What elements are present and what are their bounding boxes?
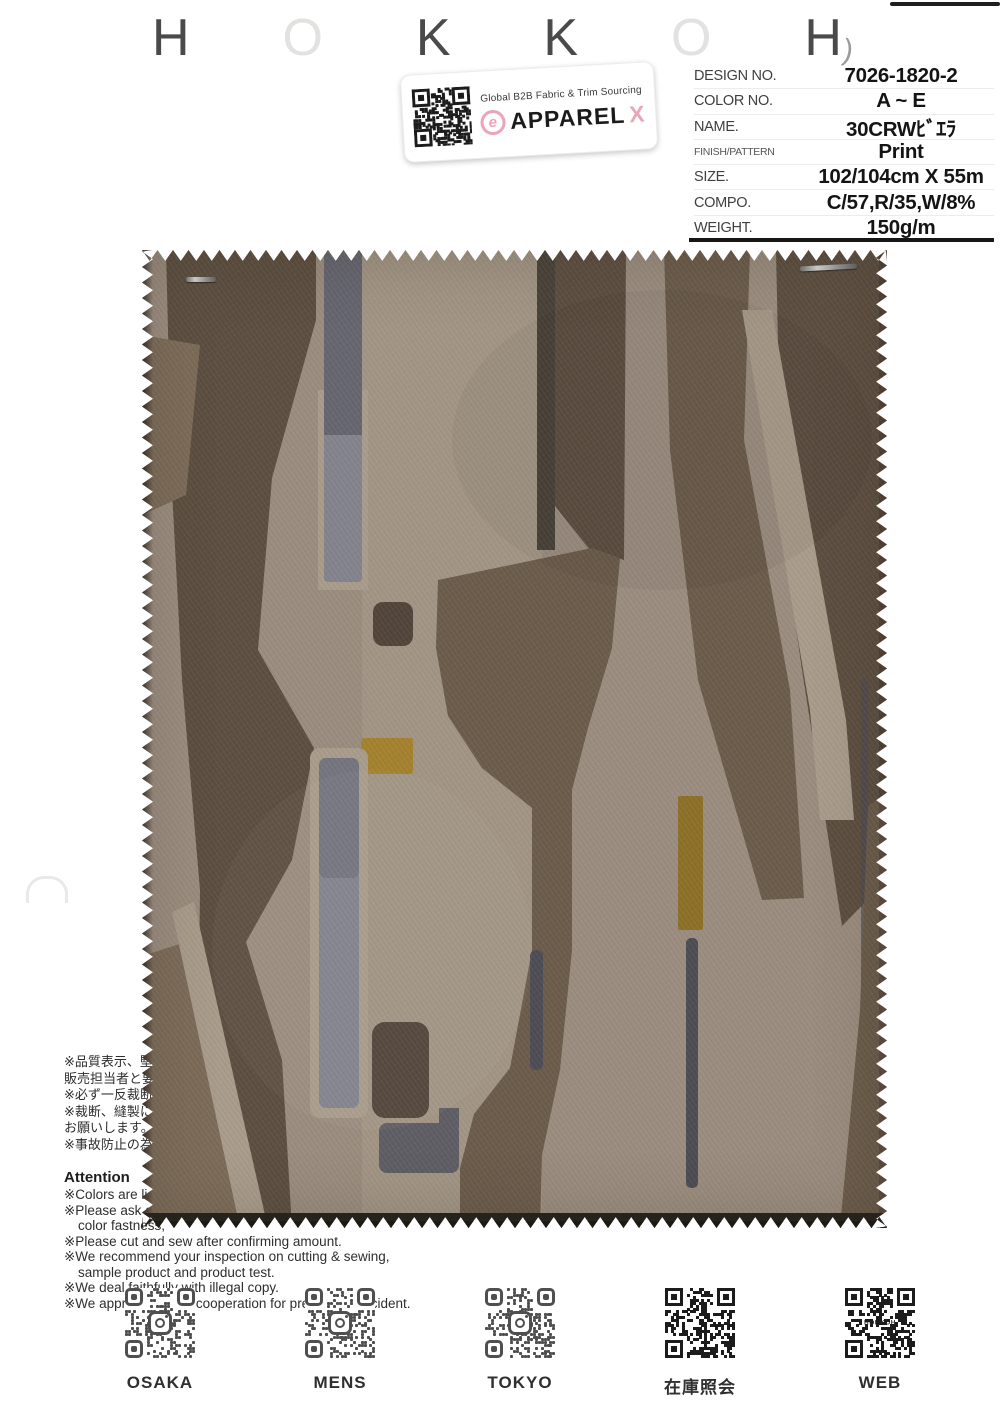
spec-value: 7026-1820-2 [808,64,994,88]
print-artifact-arc [26,876,68,903]
apparelx-brand-name: APPAREL [509,101,626,134]
apparelx-logo-icon: e [480,109,506,135]
spec-value: 30CRWﾋﾞｴﾗ [808,112,994,142]
spec-value: C/57,R/35,W/8% [808,191,994,215]
qr-item-web: HOKKOH WEB [815,1288,945,1398]
apparelx-brand-x: X [628,100,645,128]
apparelx-sticker: Global B2B Fabric & Trim Sourcing e APPA… [400,61,659,163]
qr-item-stock-inquiry: 在庫照会 [635,1288,765,1398]
spec-label: COLOR NO. [694,93,808,109]
spec-value: 102/104cm X 55m [808,165,994,189]
spec-label: COMPO. [694,195,808,211]
staple-left-icon [186,277,216,282]
spec-row-compo: COMPO. C/57,R/35,W/8% [694,190,994,215]
qr-item-osaka: OSAKA [95,1288,225,1398]
qr-label: OSAKA [127,1373,193,1393]
apparelx-sticker-text: Global B2B Fabric & Trim Sourcing e APPA… [476,84,648,136]
brand-logo-hokkoh: H O K K O H [152,12,842,64]
spec-value: A ~ E [808,89,994,113]
brand-letter-faint: O [282,12,322,64]
spec-row-design-no: DESIGN NO. 7026-1820-2 [694,64,994,89]
qr-item-tokyo: TOKYO [455,1288,585,1398]
osaka-qr-code-icon [125,1288,195,1358]
qr-label: WEB [859,1373,902,1393]
web-qr-code-icon: HOKKOH [845,1288,915,1358]
brand-letter-faint: O [671,12,711,64]
spec-label: FINISH/PATTERN [694,146,808,158]
fabric-swatch [142,250,887,1228]
fabric-sample-card: { "header": { "letters": ["H","O","K","K… [0,0,1000,1414]
note-line: ※Please cut and sew after confirming amo… [64,1234,584,1250]
stock-inquiry-qr-code-icon [665,1288,735,1358]
spec-table-rule [689,238,994,242]
spec-value: Print [808,140,994,164]
scan-edge-line [890,2,1000,6]
brand-letter: H [152,12,190,64]
qr-label: TOKYO [487,1373,552,1393]
instagram-icon [328,1311,352,1335]
qr-label: MENS [313,1373,366,1393]
tokyo-qr-code-icon [485,1288,555,1358]
spec-row-size: SIZE. 102/104cm X 55m [694,165,994,190]
qr-item-mens: MENS [275,1288,405,1398]
note-line: ※We recommend your inspection on cutting… [64,1249,584,1265]
spec-label: DESIGN NO. [694,68,808,84]
fabric-right-edge-shadow [879,250,887,1228]
apparelx-qr-code-icon [412,86,473,147]
instagram-icon [148,1311,172,1335]
spec-label: SIZE. [694,169,808,185]
brand-letter: K [543,12,578,64]
mens-qr-code-icon [305,1288,375,1358]
spec-row-finish-pattern: FINISH/PATTERN Print [694,140,994,165]
qr-label: 在庫照会 [664,1373,736,1398]
spec-label: NAME. [694,119,808,135]
spec-row-name: NAME. 30CRWﾋﾞｴﾗ [694,115,994,140]
qr-links-row: OSAKA MENS TOKYO 在庫照会 HOKKOH WEB [95,1288,945,1398]
instagram-icon [508,1311,532,1335]
brand-letter: K [416,12,451,64]
note-line: sample product and product test. [64,1265,584,1281]
spec-value: 150g/m [808,216,994,240]
brand-letter: H [804,12,842,64]
spec-table: DESIGN NO. 7026-1820-2 COLOR NO. A ~ E N… [694,64,994,241]
spec-label: WEIGHT. [694,220,808,236]
fabric-vignette [142,250,887,1228]
